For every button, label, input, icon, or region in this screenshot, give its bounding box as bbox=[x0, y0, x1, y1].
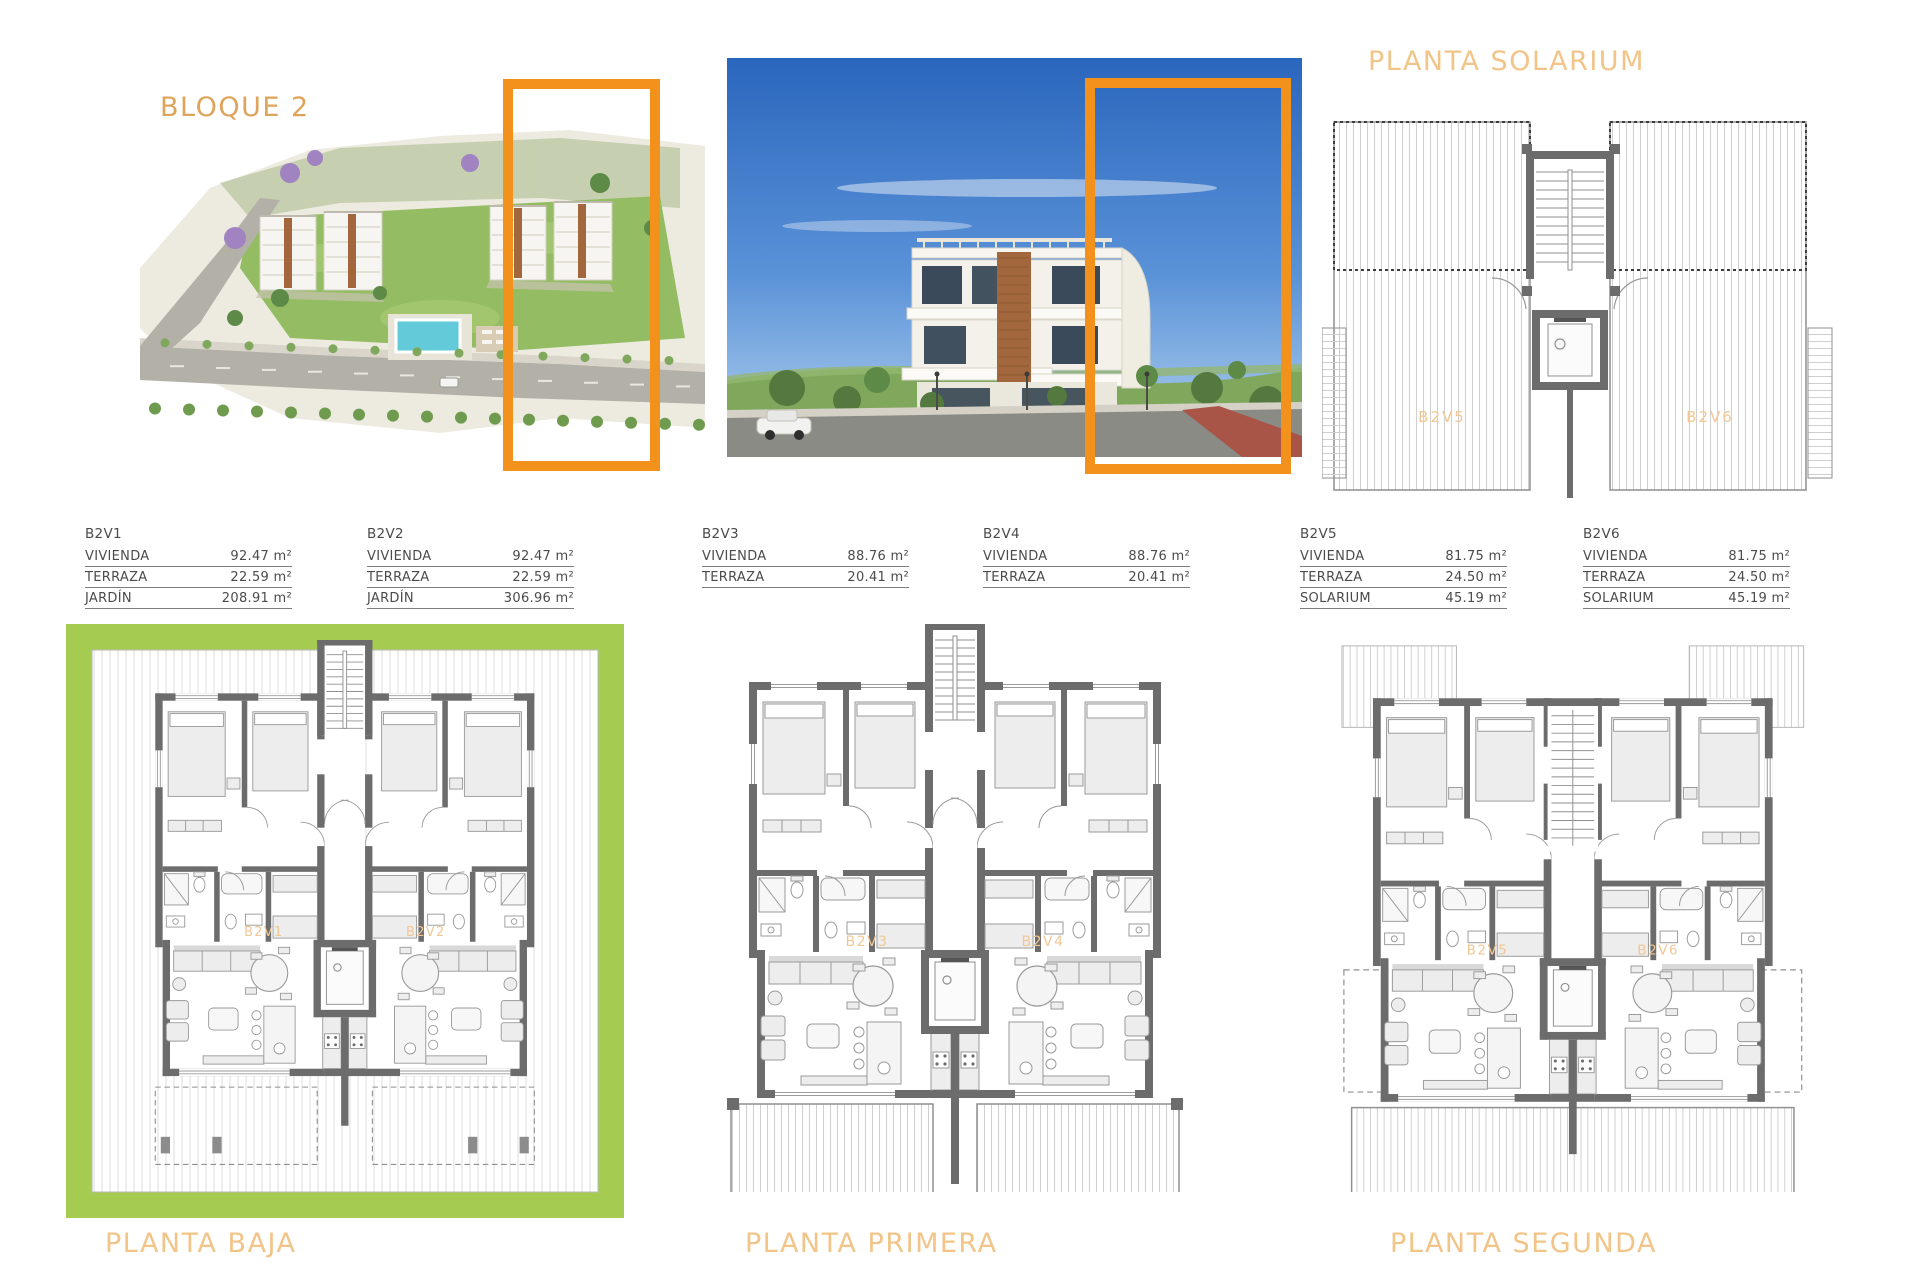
area-label: VIVIENDA bbox=[1583, 549, 1647, 564]
area-label: TERRAZA bbox=[1300, 570, 1363, 585]
aerial-highlight-box bbox=[503, 79, 660, 471]
area-value: 306.96 m² bbox=[504, 591, 574, 606]
area-value: 24.50 m² bbox=[1728, 570, 1790, 585]
unit-table-row: SOLARIUM45.19 m² bbox=[1300, 588, 1507, 609]
unit-table-b2v4: B2V4 VIVIENDA88.76 m² TERRAZA20.41 m² bbox=[983, 526, 1190, 588]
area-value: 20.41 m² bbox=[1128, 570, 1190, 585]
area-value: 92.47 m² bbox=[230, 549, 292, 564]
unit-table-title: B2V3 bbox=[702, 526, 909, 546]
unit-table-row: VIVIENDA81.75 m² bbox=[1583, 546, 1790, 567]
area-label: VIVIENDA bbox=[367, 549, 431, 564]
unit-table-row: VIVIENDA81.75 m² bbox=[1300, 546, 1507, 567]
planta-primera-floorplan: B2V3B2V4 bbox=[713, 620, 1197, 1192]
area-value: 22.59 m² bbox=[230, 570, 292, 585]
area-value: 22.59 m² bbox=[512, 570, 574, 585]
unit-table-b2v6: B2V6 VIVIENDA81.75 m² TERRAZA24.50 m² SO… bbox=[1583, 526, 1790, 609]
unit-table-title: B2V1 bbox=[85, 526, 292, 546]
area-label: SOLARIUM bbox=[1300, 591, 1371, 606]
unit-table-title: B2V2 bbox=[367, 526, 574, 546]
svg-text:B2V1: B2V1 bbox=[244, 925, 284, 940]
svg-text:B2V3: B2V3 bbox=[846, 934, 889, 950]
unit-table-b2v1: B2V1 VIVIENDA92.47 m² TERRAZA22.59 m² JA… bbox=[85, 526, 292, 609]
area-value: 88.76 m² bbox=[847, 549, 909, 564]
area-label: TERRAZA bbox=[367, 570, 430, 585]
area-value: 208.91 m² bbox=[222, 591, 292, 606]
unit-table-b2v2: B2V2 VIVIENDA92.47 m² TERRAZA22.59 m² JA… bbox=[367, 526, 574, 609]
area-label: SOLARIUM bbox=[1583, 591, 1654, 606]
area-value: 92.47 m² bbox=[512, 549, 574, 564]
unit-table-title: B2V4 bbox=[983, 526, 1190, 546]
unit-table-row: TERRAZA20.41 m² bbox=[983, 567, 1190, 588]
area-label: TERRAZA bbox=[983, 570, 1046, 585]
unit-table-row: JARDÍN306.96 m² bbox=[367, 588, 574, 609]
area-label: VIVIENDA bbox=[702, 549, 766, 564]
unit-table-row: VIVIENDA88.76 m² bbox=[702, 546, 909, 567]
unit-table-b2v3: B2V3 VIVIENDA88.76 m² TERRAZA20.41 m² bbox=[702, 526, 909, 588]
unit-table-row: VIVIENDA88.76 m² bbox=[983, 546, 1190, 567]
unit-table-row: TERRAZA22.59 m² bbox=[85, 567, 292, 588]
unit-table-row: VIVIENDA92.47 m² bbox=[85, 546, 292, 567]
svg-text:B2V6: B2V6 bbox=[1637, 942, 1679, 958]
area-value: 24.50 m² bbox=[1445, 570, 1507, 585]
svg-text:B2V4: B2V4 bbox=[1022, 934, 1065, 950]
planta-baja-title: PLANTA BAJA bbox=[105, 1228, 297, 1259]
street-highlight-box bbox=[1085, 78, 1291, 474]
unit-table-row: TERRAZA20.41 m² bbox=[702, 567, 909, 588]
area-value: 45.19 m² bbox=[1728, 591, 1790, 606]
svg-text:B2V5: B2V5 bbox=[1418, 408, 1466, 426]
unit-table-row: TERRAZA24.50 m² bbox=[1300, 567, 1507, 588]
unit-table-row: SOLARIUM45.19 m² bbox=[1583, 588, 1790, 609]
planta-segunda-title: PLANTA SEGUNDA bbox=[1390, 1228, 1657, 1259]
planta-primera-title: PLANTA PRIMERA bbox=[745, 1228, 998, 1259]
area-label: VIVIENDA bbox=[1300, 549, 1364, 564]
area-value: 45.19 m² bbox=[1445, 591, 1507, 606]
area-value: 88.76 m² bbox=[1128, 549, 1190, 564]
area-label: JARDÍN bbox=[85, 591, 132, 606]
unit-table-row: TERRAZA24.50 m² bbox=[1583, 567, 1790, 588]
unit-table-title: B2V5 bbox=[1300, 526, 1507, 546]
unit-table-title: B2V6 bbox=[1583, 526, 1790, 546]
area-label: TERRAZA bbox=[702, 570, 765, 585]
area-label: TERRAZA bbox=[1583, 570, 1646, 585]
unit-table-row: TERRAZA22.59 m² bbox=[367, 567, 574, 588]
area-label: JARDÍN bbox=[367, 591, 414, 606]
area-value: 81.75 m² bbox=[1445, 549, 1507, 564]
svg-text:B2V2: B2V2 bbox=[406, 925, 446, 940]
planta-solarium-floorplan: B2V5B2V6 bbox=[1322, 100, 1852, 500]
unit-table-row: JARDÍN208.91 m² bbox=[85, 588, 292, 609]
unit-table-b2v5: B2V5 VIVIENDA81.75 m² TERRAZA24.50 m² SO… bbox=[1300, 526, 1507, 609]
planta-segunda-floorplan: B2V5B2V6 bbox=[1293, 640, 1857, 1192]
area-label: VIVIENDA bbox=[983, 549, 1047, 564]
area-value: 20.41 m² bbox=[847, 570, 909, 585]
plan-sheet: BLOQUE 2 PLANTA SOLARIUM B2V5B2V6 B2V1 V… bbox=[0, 0, 1920, 1269]
planta-solarium-title: PLANTA SOLARIUM bbox=[1368, 46, 1645, 77]
area-label: TERRAZA bbox=[85, 570, 148, 585]
svg-text:B2V5: B2V5 bbox=[1467, 942, 1509, 958]
planta-baja-floorplan: B2V1B2V2 bbox=[66, 624, 624, 1218]
svg-text:B2V6: B2V6 bbox=[1686, 408, 1734, 426]
area-value: 81.75 m² bbox=[1728, 549, 1790, 564]
area-label: VIVIENDA bbox=[85, 549, 149, 564]
unit-table-row: VIVIENDA92.47 m² bbox=[367, 546, 574, 567]
